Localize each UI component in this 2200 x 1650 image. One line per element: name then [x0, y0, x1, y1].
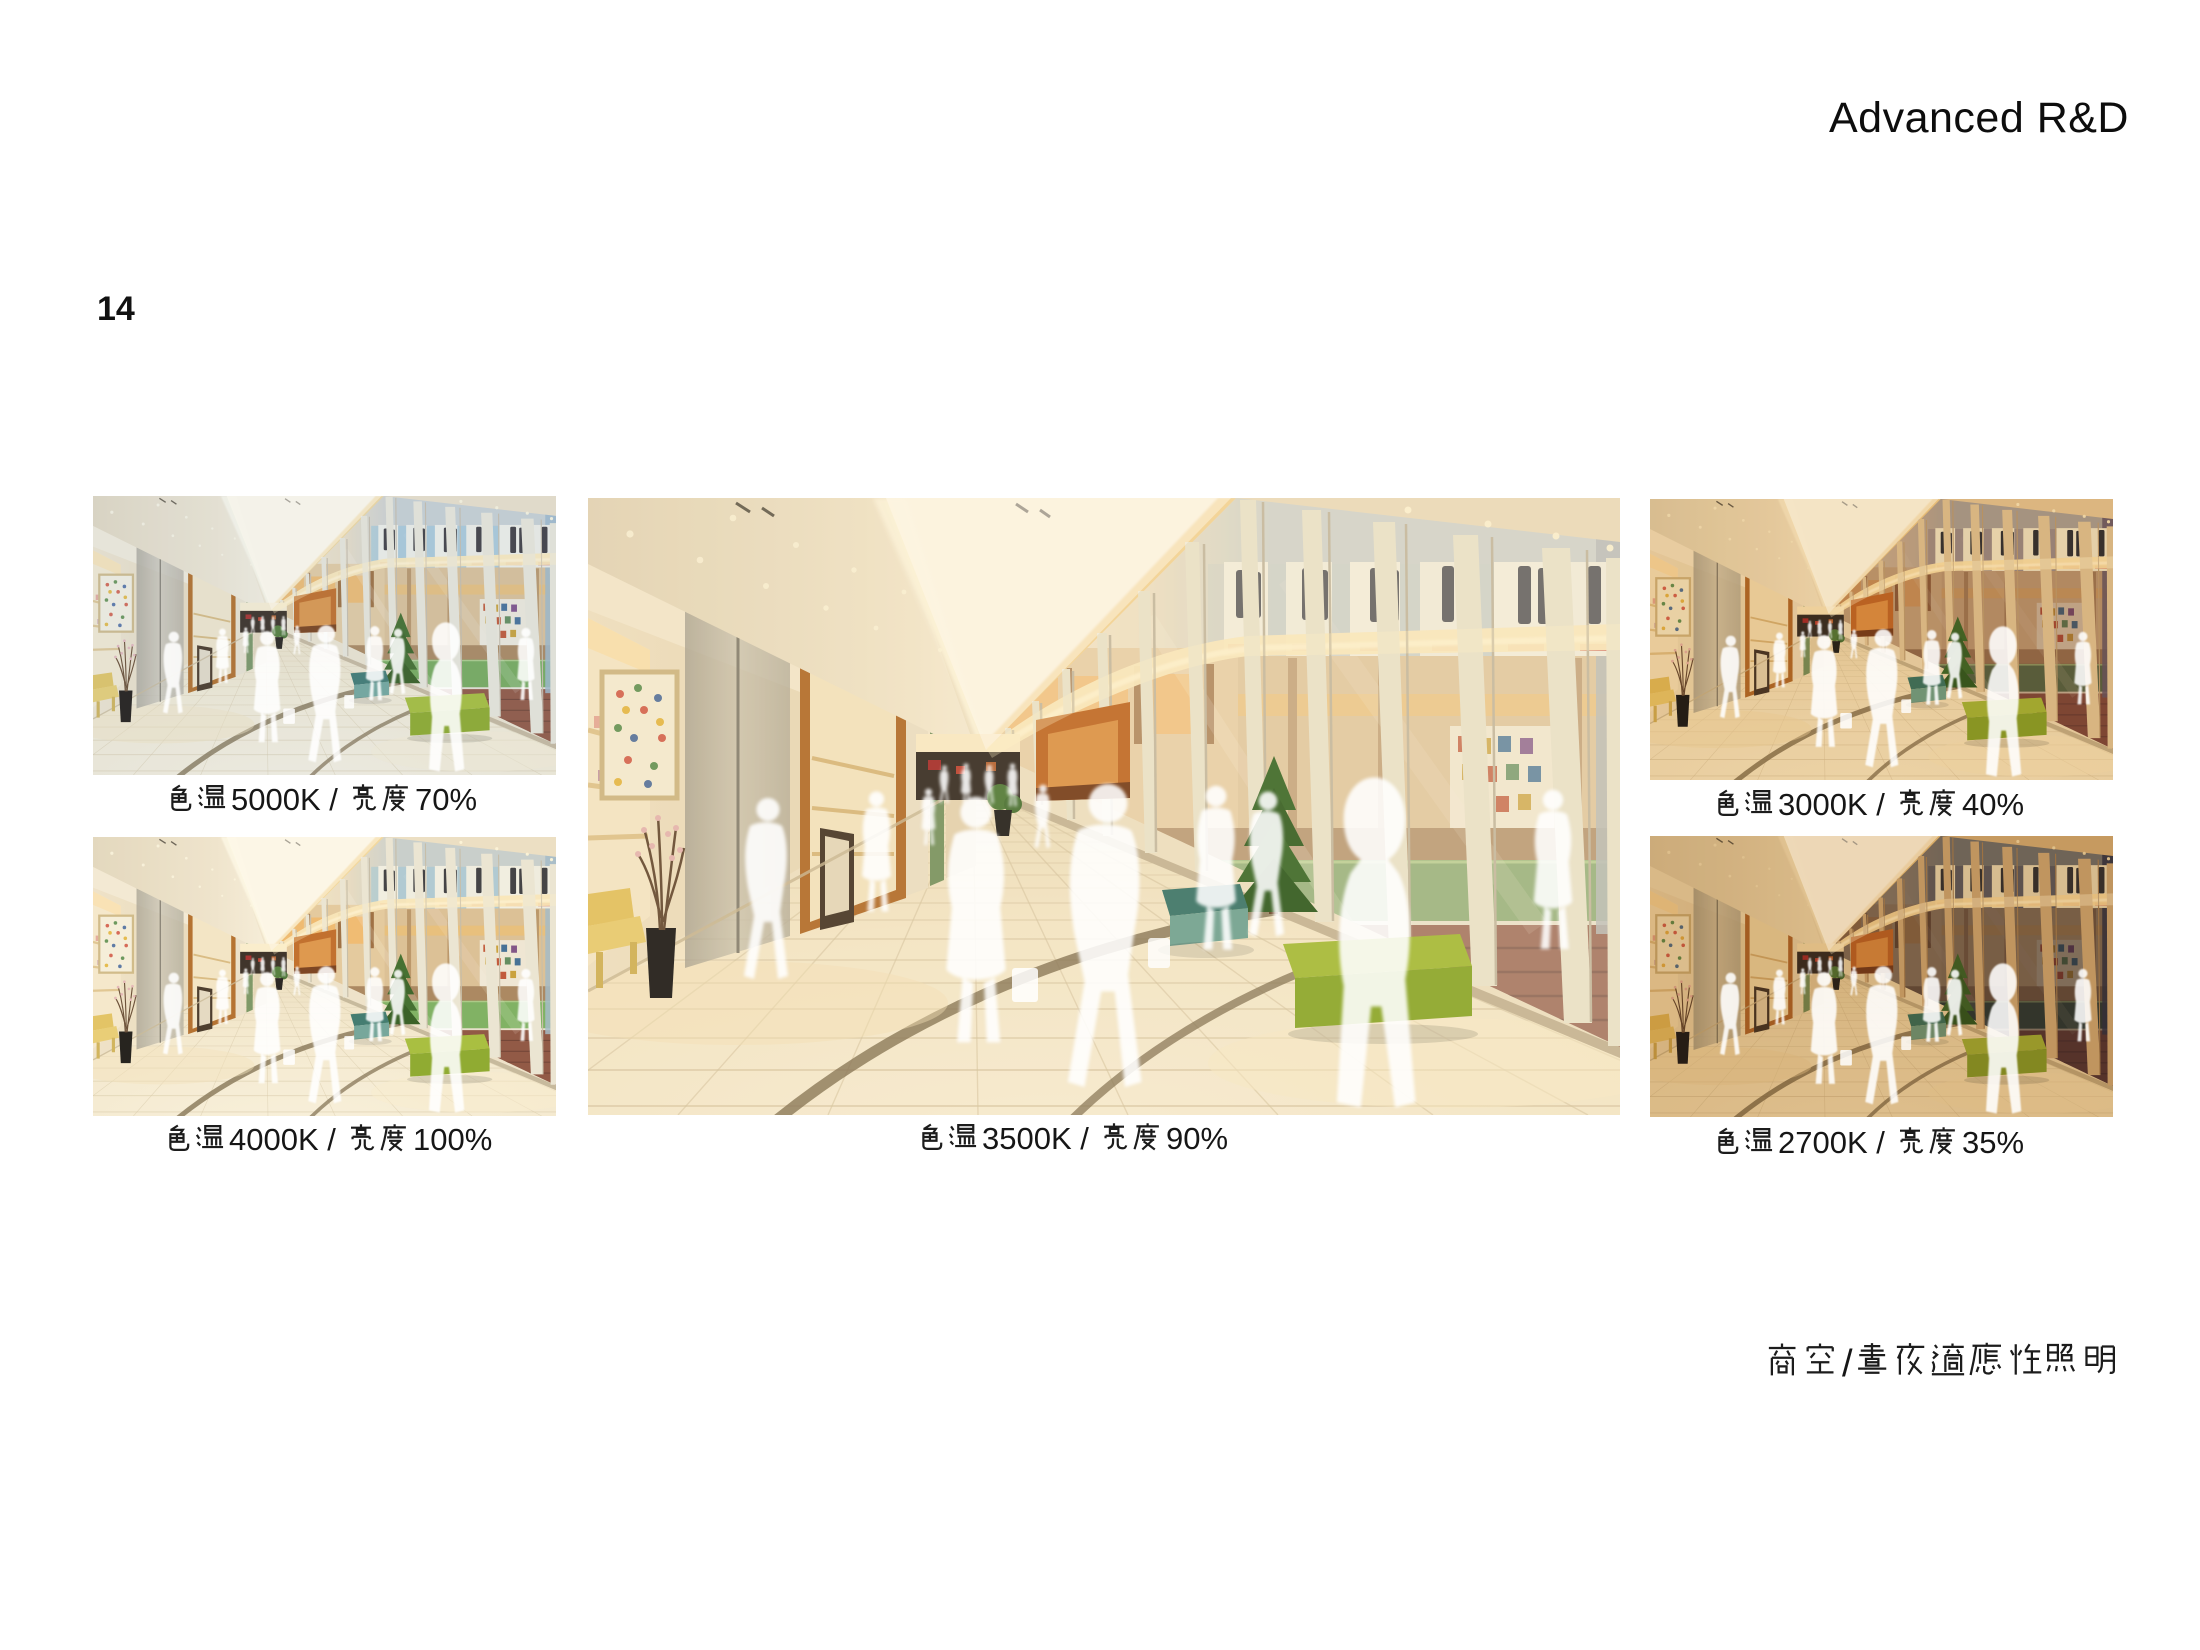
svg-text:3500K /: 3500K / — [982, 1121, 1089, 1156]
svg-text:100%: 100% — [413, 1122, 492, 1157]
svg-text:5000K /: 5000K / — [231, 782, 338, 817]
svg-text:40%: 40% — [1962, 787, 2024, 822]
svg-text:2700K /: 2700K / — [1778, 1125, 1885, 1160]
svg-text:3000K /: 3000K / — [1778, 787, 1885, 822]
svg-text:70%: 70% — [415, 782, 477, 817]
svg-text:/: / — [1842, 1343, 1853, 1384]
svg-text:35%: 35% — [1962, 1125, 2024, 1160]
svg-text:90%: 90% — [1166, 1121, 1228, 1156]
svg-text:4000K /: 4000K / — [229, 1122, 336, 1157]
